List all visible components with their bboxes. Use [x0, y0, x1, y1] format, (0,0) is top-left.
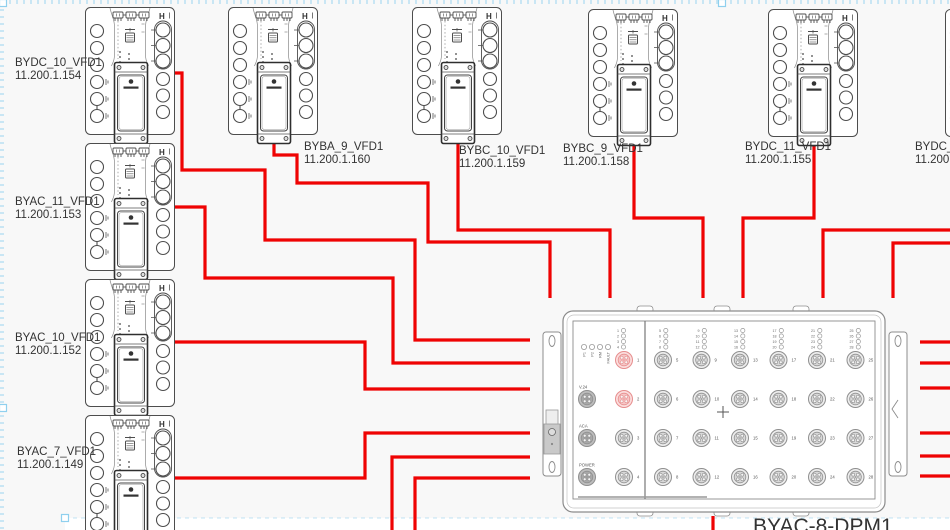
port-icon[interactable]: [655, 469, 672, 486]
device-name-label: BYBC_9_VFD1: [563, 143, 643, 155]
port-icon[interactable]: [655, 430, 672, 447]
device-name-label: BYBA_9_VFD1: [304, 141, 383, 153]
port-number: 23: [830, 436, 835, 441]
aux-port-label: V.24: [579, 385, 588, 390]
port-icon-highlighted[interactable]: [616, 352, 633, 369]
port-icon[interactable]: [770, 391, 787, 408]
svg-text:20: 20: [773, 345, 777, 349]
vfd-device-byba_9_vfd1[interactable]: H: [229, 8, 318, 144]
vfd-device-byac_7_vfd1[interactable]: H: [86, 416, 175, 530]
svg-text:2: 2: [617, 334, 619, 338]
diagram-canvas[interactable]: HHHHHHHHH P1P2RMFAULTV.24ACAPOWER1122334…: [0, 0, 950, 530]
device-name-label: BYDC_11_VFD1: [745, 141, 831, 153]
port-icon[interactable]: [732, 352, 749, 369]
svg-text:16: 16: [734, 345, 738, 349]
device-name-label: BYAC_7_VFD1: [17, 446, 96, 458]
svg-text:15: 15: [734, 340, 738, 344]
port-number: 26: [869, 397, 874, 402]
cable-wire[interactable]: [823, 230, 950, 298]
port-number: 21: [830, 358, 835, 363]
status-led-label: P1: [582, 352, 586, 357]
port-icon[interactable]: [847, 352, 864, 369]
svg-text:19: 19: [773, 340, 777, 344]
svg-text:14: 14: [734, 334, 738, 338]
cable-wire[interactable]: [175, 342, 530, 389]
svg-text:27: 27: [850, 340, 854, 344]
corner-mark: H: [486, 12, 492, 21]
device-ip-label: 11.200.1.160: [304, 154, 370, 166]
port-icon[interactable]: [616, 430, 633, 447]
svg-text:18: 18: [773, 334, 777, 338]
aux-port-label: POWER: [579, 463, 595, 468]
svg-text:3: 3: [617, 340, 619, 344]
svg-text:5: 5: [659, 329, 661, 333]
vfd-device-bydc_11_vfd1[interactable]: H: [769, 10, 858, 146]
port-number: 12: [715, 475, 720, 480]
port-number: 24: [830, 475, 835, 480]
device-ip-label: 11.200.1.155: [745, 154, 811, 166]
port-icon[interactable]: [809, 391, 826, 408]
port-number: 15: [753, 436, 758, 441]
svg-text:13: 13: [734, 329, 738, 333]
svg-text:26: 26: [850, 334, 854, 338]
port-icon[interactable]: [809, 430, 826, 447]
svg-text:24: 24: [811, 345, 815, 349]
svg-text:4: 4: [617, 345, 619, 349]
device-ip-label: 11.200.1.153: [15, 209, 81, 221]
vfd-device-bybc_9_vfd1[interactable]: H: [589, 10, 678, 146]
port-icon-highlighted[interactable]: [616, 391, 633, 408]
port-icon[interactable]: [770, 430, 787, 447]
port-icon[interactable]: [847, 430, 864, 447]
port-icon[interactable]: [770, 469, 787, 486]
svg-text:22: 22: [811, 334, 815, 338]
corner-mark: H: [842, 14, 848, 23]
svg-text:12: 12: [696, 345, 700, 349]
svg-text:21: 21: [811, 329, 815, 333]
port-number: 28: [869, 475, 874, 480]
port-icon[interactable]: [693, 352, 710, 369]
cable-wire[interactable]: [743, 145, 814, 298]
aux-port-v.24[interactable]: [579, 391, 596, 408]
port-icon[interactable]: [732, 391, 749, 408]
vfd-device-bydc_12[interactable]: H: [946, 10, 950, 146]
port-number: 20: [792, 475, 797, 480]
vfd-device-bybc_10_vfd1[interactable]: H: [413, 8, 502, 144]
svg-text:6: 6: [659, 334, 661, 338]
device-name-label: BYDC_12: [915, 141, 950, 153]
device-ip-label: 11.200.1.149: [17, 459, 83, 471]
device-name-label: BYBC_10_VFD1: [459, 145, 545, 157]
port-number: 13: [753, 358, 758, 363]
device-name-label: BYAC_11_VFD1: [15, 196, 100, 208]
corner-mark: H: [159, 284, 165, 293]
vfd-device-byac_10_vfd1[interactable]: H: [86, 280, 175, 416]
port-icon[interactable]: [655, 391, 672, 408]
port-icon[interactable]: [770, 352, 787, 369]
port-icon[interactable]: [655, 352, 672, 369]
port-number: 14: [753, 397, 758, 402]
svg-text:10: 10: [696, 334, 700, 338]
corner-mark: H: [159, 12, 165, 21]
port-icon[interactable]: [693, 430, 710, 447]
vfd-device-byac_11_vfd1[interactable]: H: [86, 144, 175, 280]
selection-handle[interactable]: [719, 0, 726, 7]
port-icon[interactable]: [693, 469, 710, 486]
device-ip-label: 11.200.1.159: [459, 158, 525, 170]
svg-text:7: 7: [659, 340, 661, 344]
device-ip-label: 11.200.1.152: [15, 345, 81, 357]
port-number: 27: [869, 436, 874, 441]
corner-mark: H: [159, 148, 165, 157]
status-led-label: P2: [590, 352, 594, 357]
port-number: 22: [830, 397, 835, 402]
device-name-label: BYDC_10_VFD1: [15, 57, 102, 69]
dpm-label: BYAC-8-DPM1: [753, 515, 893, 530]
status-led-label: RM: [598, 352, 602, 358]
port-icon[interactable]: [616, 469, 633, 486]
corner-mark: H: [302, 12, 308, 21]
cable-wire[interactable]: [634, 145, 703, 298]
port-number: 10: [715, 397, 720, 402]
port-number: 11: [715, 436, 720, 441]
port-number: 19: [792, 436, 797, 441]
svg-text:17: 17: [773, 329, 777, 333]
port-number: 25: [869, 358, 874, 363]
svg-text:23: 23: [811, 340, 815, 344]
device-ip-label: 11.200.1: [915, 154, 950, 166]
corner-mark: H: [662, 14, 668, 23]
device-ip-label: 11.200.1.158: [563, 156, 629, 168]
svg-text:25: 25: [850, 329, 854, 333]
status-led-label: FAULT: [606, 351, 610, 363]
port-icon[interactable]: [732, 430, 749, 447]
port-number: 16: [753, 475, 758, 480]
port-number: 17: [792, 358, 797, 363]
cable-wire[interactable]: [893, 243, 950, 298]
aux-port-aca[interactable]: [579, 430, 596, 447]
selection-handle[interactable]: [0, 0, 7, 7]
svg-text:8: 8: [659, 345, 661, 349]
device-ip-label: 11.200.1.154: [15, 70, 82, 82]
svg-text:9: 9: [698, 329, 700, 333]
dpm-device[interactable]: P1P2RMFAULTV.24ACAPOWER11223344556677889…: [543, 306, 907, 516]
port-number: 18: [792, 397, 797, 402]
device-name-label: BYAC_10_VFD1: [15, 332, 100, 344]
port-icon[interactable]: [693, 391, 710, 408]
selection-handle[interactable]: [0, 405, 7, 412]
vfd-device-bydc_10_vfd1[interactable]: H: [86, 8, 175, 144]
aux-port-power[interactable]: [579, 469, 596, 486]
svg-text:1: 1: [617, 329, 619, 333]
port-icon[interactable]: [847, 391, 864, 408]
svg-text:11: 11: [696, 340, 700, 344]
port-icon[interactable]: [732, 469, 749, 486]
port-icon[interactable]: [809, 469, 826, 486]
corner-mark: H: [159, 420, 165, 429]
port-icon[interactable]: [847, 469, 864, 486]
svg-text:28: 28: [850, 345, 854, 349]
selection-handle[interactable]: [62, 515, 69, 522]
aux-port-label: ACA: [579, 424, 588, 429]
port-icon[interactable]: [809, 352, 826, 369]
